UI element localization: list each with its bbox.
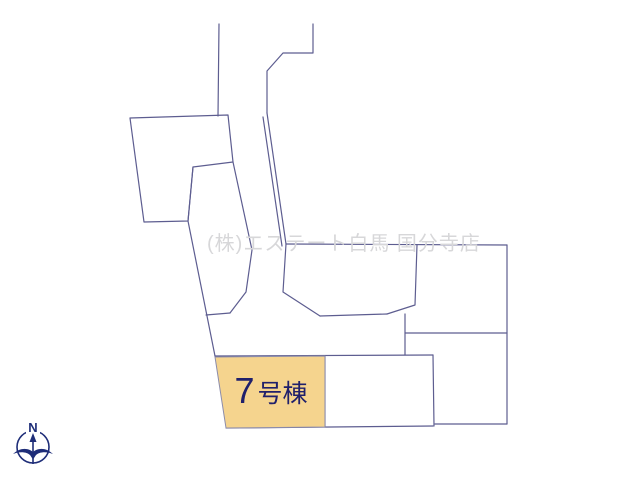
compass-north-label: N xyxy=(28,420,37,435)
boundary-upper-left-lot xyxy=(130,115,233,222)
lot-label-number: 7 xyxy=(234,373,254,409)
boundary-line-road-top-west xyxy=(206,313,230,315)
lot-label: 7 号棟 xyxy=(215,368,327,414)
boundary-line-road-left xyxy=(218,24,219,116)
boundary-line-road-top xyxy=(320,314,387,316)
lot-label-suffix: 号棟 xyxy=(258,376,308,407)
boundary-line-road-right xyxy=(267,24,313,113)
boundary-line-wall-outer xyxy=(267,113,286,244)
boundary-line-middle-lot-right xyxy=(433,355,434,426)
boundary-line-west xyxy=(188,167,215,356)
watermark-text: (株)エステート白馬 国分寺店 xyxy=(207,227,447,256)
plot-map-canvas: (株)エステート白馬 国分寺店 7 号棟 N xyxy=(0,0,640,480)
compass-icon: N xyxy=(10,418,60,474)
